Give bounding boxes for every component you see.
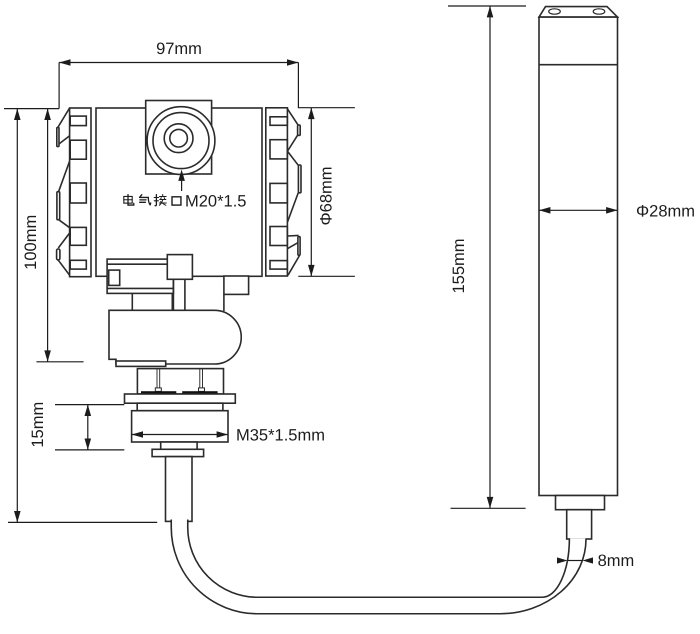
svg-text:155mm: 155mm <box>450 238 468 293</box>
svg-text:15mm: 15mm <box>29 402 47 448</box>
svg-text:M20*1.5: M20*1.5 <box>185 193 246 211</box>
svg-text:Φ28mm: Φ28mm <box>636 203 695 221</box>
svg-text:M35*1.5mm: M35*1.5mm <box>236 427 325 445</box>
svg-text:8mm: 8mm <box>598 552 635 570</box>
svg-text:97mm: 97mm <box>156 40 202 58</box>
svg-text:Φ68mm: Φ68mm <box>318 166 336 225</box>
svg-text:100mm: 100mm <box>22 215 40 270</box>
